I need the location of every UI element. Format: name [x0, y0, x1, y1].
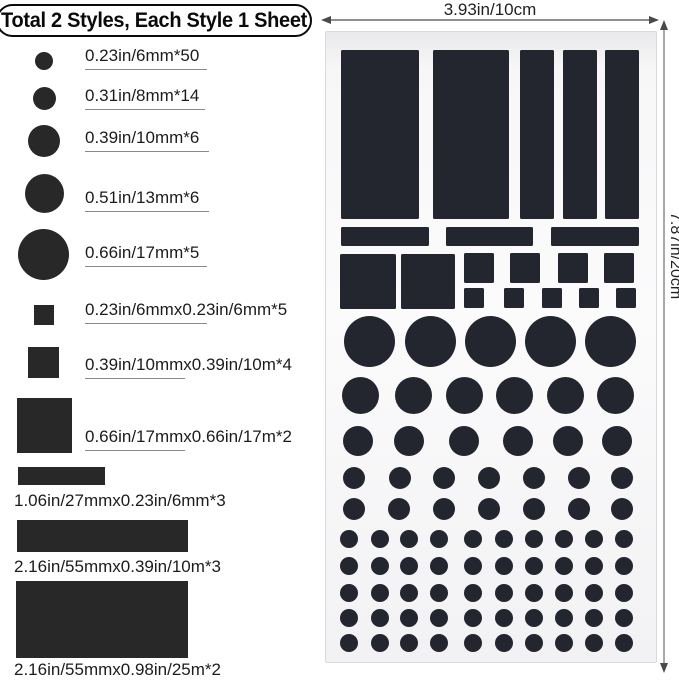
sticker-circle — [371, 634, 389, 652]
sticker-rect — [605, 50, 639, 219]
legend-underline — [85, 109, 205, 110]
sticker-circle — [495, 634, 513, 652]
sticker-rect — [558, 253, 588, 283]
sticker-circle — [525, 530, 543, 548]
sticker-circle — [523, 498, 545, 520]
height-dimension-arrow — [656, 20, 672, 673]
sticker-circle — [340, 530, 358, 548]
sticker-circle — [430, 530, 448, 548]
sticker-circle — [495, 557, 513, 575]
sticker-rect — [340, 254, 396, 309]
sticker-circle — [615, 634, 633, 652]
sticker-circle — [568, 498, 590, 520]
sticker-rect — [542, 288, 562, 308]
sticker-circle — [555, 584, 573, 602]
sticker-circle — [395, 377, 432, 414]
sticker-circle — [340, 609, 358, 627]
sticker-circle — [585, 316, 636, 367]
sticker-rect — [563, 50, 597, 219]
sticker-rect — [510, 253, 540, 283]
legend-swatch-circle — [25, 174, 64, 213]
legend-underline — [85, 378, 185, 379]
sticker-circle — [449, 426, 479, 456]
sticker-circle — [400, 557, 418, 575]
sticker-circle — [478, 467, 500, 489]
sticker-circle — [553, 426, 583, 456]
sticker-circle — [503, 426, 533, 456]
sticker-circle — [400, 530, 418, 548]
sticker-circle — [555, 557, 573, 575]
sticker-circle — [343, 467, 365, 489]
legend-size-label: 0.23in/6mm*50 — [85, 46, 199, 66]
sticker-circle — [340, 557, 358, 575]
legend-size-label: 1.06in/27mmx0.23in/6mm*3 — [14, 491, 226, 511]
sticker-rect — [504, 288, 524, 308]
sticker-circle — [343, 498, 365, 520]
sticker-circle — [568, 467, 590, 489]
legend-size-label: 0.31in/8mm*14 — [85, 86, 199, 106]
sticker-rect — [579, 288, 599, 308]
sticker-circle — [464, 530, 482, 548]
legend-swatch-square — [34, 305, 54, 325]
sticker-circle — [496, 377, 533, 414]
sticker-circle — [394, 426, 424, 456]
legend-swatch-square — [17, 398, 72, 453]
legend-underline — [85, 151, 209, 152]
legend-size-label: 0.66in/17mmx0.66in/17m*2 — [85, 427, 292, 447]
sticker-circle — [388, 498, 410, 520]
sticker-circle — [464, 557, 482, 575]
sticker-circle — [525, 634, 543, 652]
sticker-circle — [400, 634, 418, 652]
sticker-rect — [464, 288, 484, 308]
legend-size-label: 0.51in/13mm*6 — [85, 188, 199, 208]
sticker-circle — [400, 584, 418, 602]
legend-size-label: 0.39in/10mmx0.39in/10m*4 — [85, 355, 292, 375]
legend-swatch-rect — [17, 520, 188, 552]
sticker-circle — [602, 426, 632, 456]
sticker-circle — [430, 609, 448, 627]
sticker-circle — [433, 498, 455, 520]
sticker-circle — [465, 316, 516, 367]
sticker-rect — [341, 227, 429, 246]
sticker-circle — [615, 584, 633, 602]
sticker-rect — [520, 50, 554, 219]
sticker-circle — [525, 557, 543, 575]
legend-size-label: 0.23in/6mmx0.23in/6mm*5 — [85, 300, 287, 320]
sticker-rect — [616, 288, 636, 308]
sticker-rect — [401, 254, 455, 309]
sticker-circle — [400, 609, 418, 627]
sticker-rect — [446, 227, 533, 246]
legend-swatch-circle — [35, 52, 53, 70]
sticker-circle — [340, 634, 358, 652]
sticker-circle — [405, 316, 456, 367]
title-pill: Total 2 Styles, Each Style 1 Sheet — [0, 4, 312, 37]
legend-swatch-circle — [28, 125, 60, 157]
sticker-circle — [433, 467, 455, 489]
sticker-circle — [430, 634, 448, 652]
sticker-circle — [585, 609, 603, 627]
legend-underline — [85, 450, 185, 451]
sticker-circle — [344, 316, 395, 367]
sticker-circle — [585, 634, 603, 652]
legend-underline — [85, 211, 209, 212]
legend-underline — [85, 266, 207, 267]
sticker-circle — [597, 377, 634, 414]
sticker-circle — [615, 530, 633, 548]
product-size-diagram: Total 2 Styles, Each Style 1 Sheet 0.23i… — [0, 0, 679, 681]
legend-swatch-rect — [18, 467, 105, 485]
sticker-circle — [555, 609, 573, 627]
sticker-circle — [525, 316, 576, 367]
sticker-circle — [523, 467, 545, 489]
sticker-circle — [525, 609, 543, 627]
legend-size-label: 0.39in/10mm*6 — [85, 128, 199, 148]
sticker-rect — [604, 253, 634, 283]
sticker-circle — [495, 530, 513, 548]
sticker-circle — [464, 584, 482, 602]
sticker-circle — [430, 584, 448, 602]
sticker-circle — [446, 377, 483, 414]
sticker-circle — [371, 609, 389, 627]
sticker-circle — [615, 609, 633, 627]
sticker-circle — [464, 634, 482, 652]
width-dimension-arrow — [320, 13, 660, 27]
sticker-circle — [585, 530, 603, 548]
page-title: Total 2 Styles, Each Style 1 Sheet — [1, 9, 307, 33]
sticker-circle — [585, 557, 603, 575]
sticker-circle — [371, 584, 389, 602]
sticker-rect — [433, 50, 509, 219]
legend-underline — [85, 69, 207, 70]
sticker-circle — [389, 467, 411, 489]
sticker-circle — [464, 609, 482, 627]
sticker-circle — [525, 584, 543, 602]
sticker-rect — [551, 227, 639, 246]
sticker-circle — [495, 584, 513, 602]
sticker-circle — [342, 377, 379, 414]
legend-size-label: 0.66in/17mm*5 — [85, 243, 199, 263]
legend-size-label: 2.16in/55mmx0.39in/10m*3 — [14, 557, 221, 577]
sticker-circle — [340, 584, 358, 602]
legend-size-label: 2.16in/55mmx0.98in/25m*2 — [14, 660, 221, 680]
sticker-sheet — [325, 31, 657, 663]
sticker-circle — [371, 557, 389, 575]
sticker-circle — [371, 530, 389, 548]
sticker-circle — [555, 634, 573, 652]
sticker-circle — [611, 498, 633, 520]
sticker-circle — [430, 557, 448, 575]
sticker-circle — [478, 498, 500, 520]
legend-swatch-circle — [18, 229, 69, 280]
sticker-circle — [615, 557, 633, 575]
sticker-rect — [341, 50, 419, 219]
legend-underline — [85, 323, 207, 324]
sticker-circle — [343, 426, 373, 456]
sticker-circle — [555, 530, 573, 548]
sticker-circle — [611, 467, 633, 489]
sticker-circle — [585, 584, 603, 602]
legend-swatch-square — [28, 347, 59, 378]
legend-swatch-rect — [16, 581, 188, 658]
sticker-rect — [464, 253, 494, 283]
sticker-circle — [547, 377, 584, 414]
sticker-circle — [495, 609, 513, 627]
legend-swatch-circle — [33, 87, 56, 110]
